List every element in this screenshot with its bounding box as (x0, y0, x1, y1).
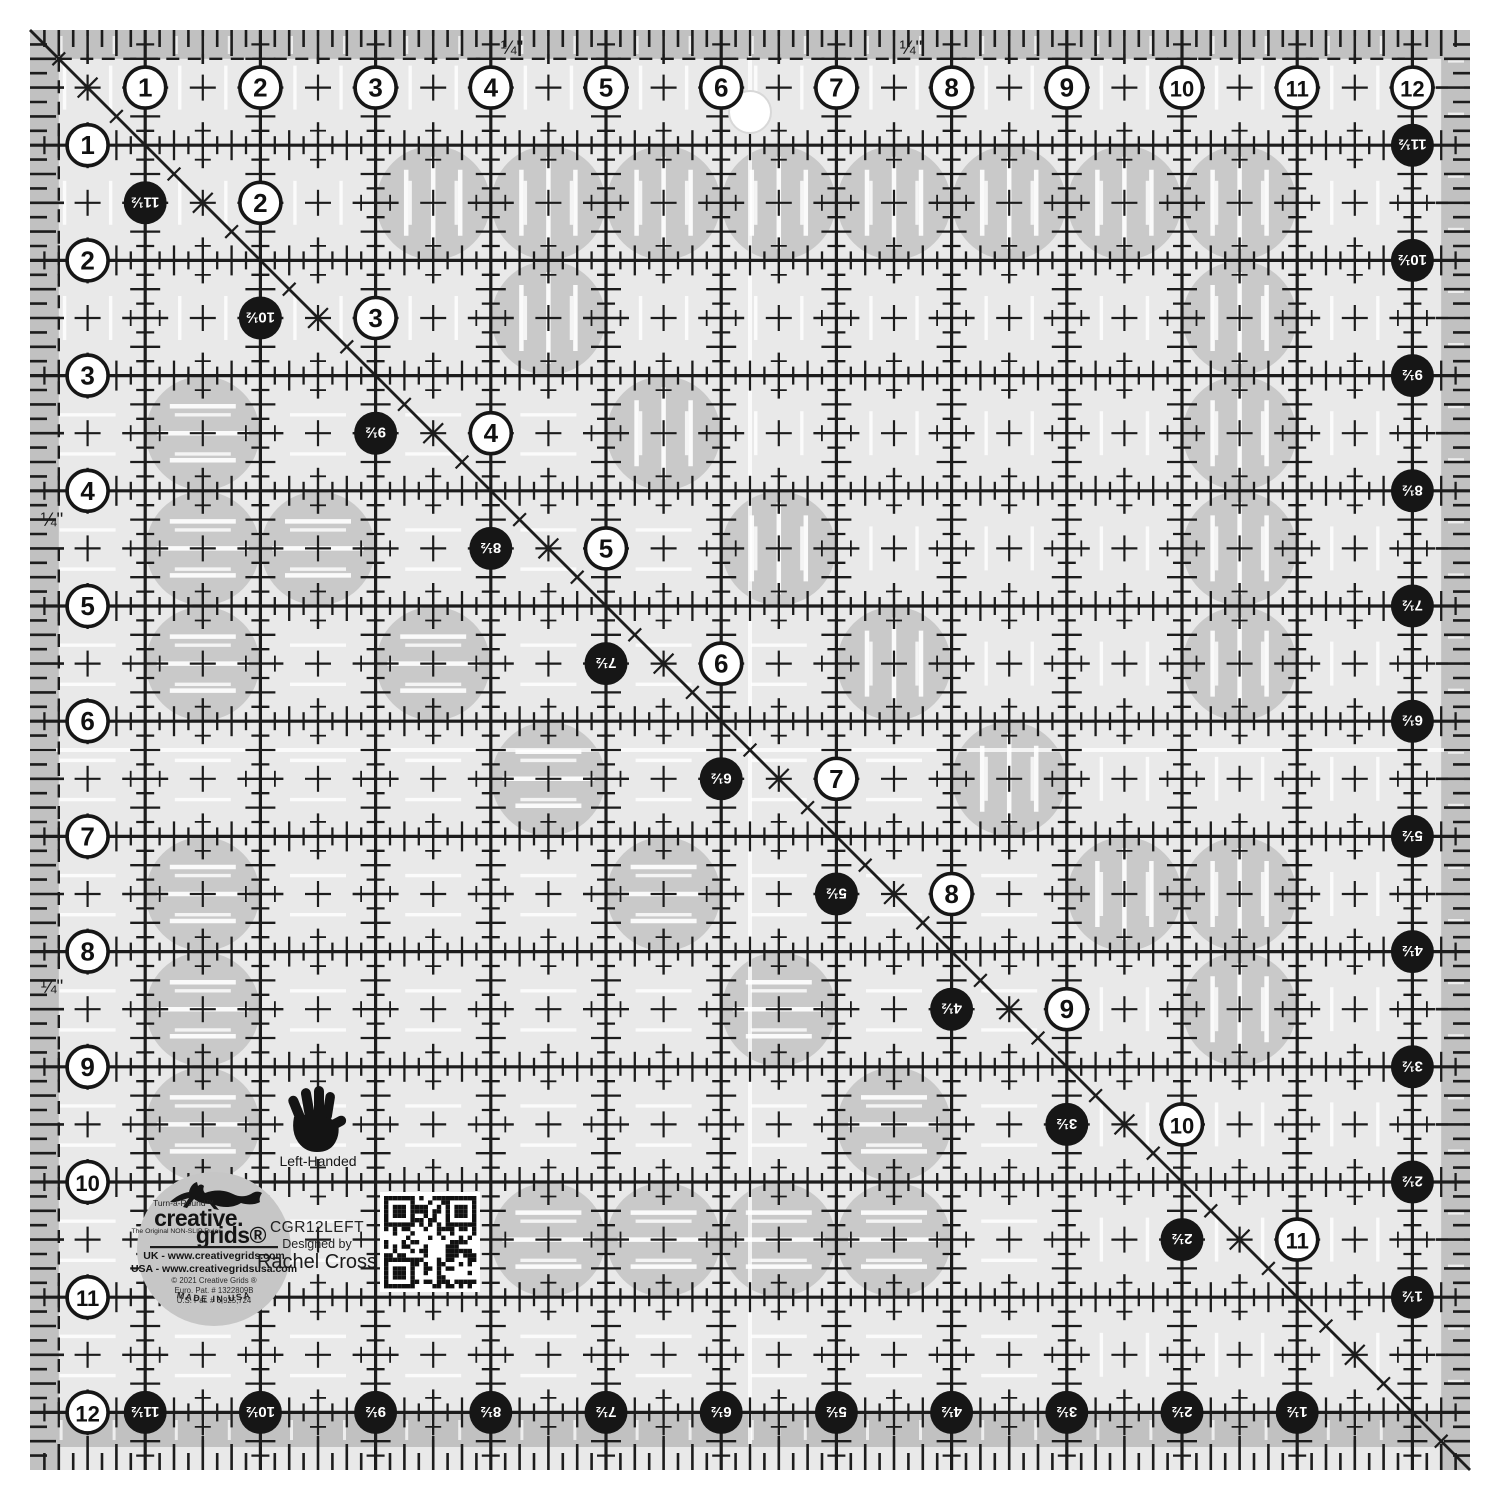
svg-text:12: 12 (1400, 77, 1424, 102)
scale-number-diag-4: 4 (470, 413, 511, 454)
scale-number-diag-rev-2½: 2½ (1161, 1218, 1204, 1261)
scale-number-diag-3: 3 (355, 298, 396, 339)
svg-text:1½: 1½ (1402, 1288, 1423, 1305)
svg-text:5: 5 (599, 533, 613, 563)
scale-number-bottom-9½: 9½ (354, 1391, 397, 1434)
svg-text:7: 7 (80, 821, 94, 851)
svg-text:5½: 5½ (826, 885, 847, 902)
designed-by-label: Designed by (282, 1237, 352, 1251)
scale-number-top-8: 8 (931, 67, 972, 108)
svg-text:7: 7 (829, 73, 843, 103)
qr-code (380, 1192, 480, 1292)
scale-number-left-12: 12 (67, 1392, 108, 1433)
scale-number-top-2: 2 (240, 67, 281, 108)
scale-number-left-1: 1 (67, 125, 108, 166)
scale-number-diag-rev-11½: 11½ (124, 181, 167, 224)
svg-text:6: 6 (714, 73, 728, 103)
scale-number-top-3: 3 (355, 67, 396, 108)
scale-number-left-4: 4 (67, 470, 108, 511)
scale-number-left-3: 3 (67, 355, 108, 396)
scale-number-left-2: 2 (67, 240, 108, 281)
svg-text:10: 10 (75, 1171, 99, 1196)
scale-number-diag-6: 6 (701, 643, 742, 684)
scale-number-top-5: 5 (586, 67, 627, 108)
svg-text:2½: 2½ (1402, 1173, 1423, 1190)
scale-number-diag-rev-4½: 4½ (930, 988, 973, 1031)
svg-text:6½: 6½ (711, 1403, 732, 1420)
svg-text:8: 8 (80, 937, 94, 967)
scale-number-diag-rev-3½: 3½ (1045, 1103, 1088, 1146)
scale-number-diag-rev-9½: 9½ (354, 412, 397, 455)
svg-text:5: 5 (599, 73, 613, 103)
scale-number-right-3½: 3½ (1391, 1045, 1434, 1088)
scale-number-diag-11: 11 (1277, 1219, 1318, 1260)
scale-number-diag-7: 7 (816, 758, 857, 799)
svg-text:10: 10 (1170, 1113, 1194, 1138)
scale-number-left-10: 10 (67, 1162, 108, 1203)
svg-text:11: 11 (76, 1286, 99, 1311)
scale-number-top-1: 1 (125, 67, 166, 108)
scale-number-right-1½: 1½ (1391, 1276, 1434, 1319)
model-number: CGR12LEFT (270, 1219, 364, 1236)
svg-text:6½: 6½ (1402, 712, 1423, 729)
scale-number-diag-5: 5 (586, 528, 627, 569)
svg-text:3: 3 (368, 73, 382, 103)
svg-text:3½: 3½ (1402, 1057, 1423, 1074)
quarter-label-left-1: ¼" (41, 510, 64, 531)
scale-number-bottom-1½: 1½ (1276, 1391, 1319, 1434)
svg-text:7½: 7½ (1402, 597, 1423, 614)
svg-text:2: 2 (80, 245, 94, 275)
svg-text:4: 4 (484, 418, 499, 448)
svg-text:4: 4 (484, 73, 499, 103)
svg-text:6: 6 (80, 706, 94, 736)
svg-text:9½: 9½ (365, 1403, 386, 1420)
scale-number-bottom-8½: 8½ (469, 1391, 512, 1434)
svg-text:2½: 2½ (1172, 1403, 1193, 1420)
svg-text:8½: 8½ (480, 1403, 501, 1420)
scale-number-right-6½: 6½ (1391, 700, 1434, 743)
scale-number-right-8½: 8½ (1391, 469, 1434, 512)
scale-number-diag-10: 10 (1162, 1104, 1203, 1145)
scale-number-diag-rev-10½: 10½ (239, 297, 282, 340)
svg-text:9: 9 (1060, 994, 1074, 1024)
svg-text:4½: 4½ (941, 1000, 962, 1017)
svg-text:9: 9 (80, 1052, 94, 1082)
svg-text:8: 8 (944, 73, 958, 103)
scale-number-diag-rev-8½: 8½ (469, 527, 512, 570)
scale-number-top-11: 11 (1277, 67, 1318, 108)
scale-number-top-7: 7 (816, 67, 857, 108)
logo-subtitle: The Original NON-SLIP Ruler (131, 1228, 221, 1235)
svg-text:10½: 10½ (246, 1403, 275, 1420)
svg-text:8½: 8½ (480, 539, 501, 556)
svg-text:1: 1 (138, 73, 152, 103)
scale-number-right-5½: 5½ (1391, 815, 1434, 858)
scale-number-right-9½: 9½ (1391, 354, 1434, 397)
scale-number-right-11½: 11½ (1391, 124, 1434, 167)
scale-number-diag-rev-7½: 7½ (585, 642, 628, 685)
scale-number-top-6: 6 (701, 67, 742, 108)
scale-number-left-7: 7 (67, 816, 108, 857)
svg-text:3: 3 (80, 361, 94, 391)
svg-text:2: 2 (253, 188, 267, 218)
svg-text:5½: 5½ (1402, 827, 1423, 844)
scale-number-bottom-2½: 2½ (1161, 1391, 1204, 1434)
quarter-label-top-1: ¼" (501, 38, 524, 59)
scale-number-bottom-11½: 11½ (124, 1391, 167, 1434)
svg-text:6½: 6½ (711, 769, 732, 786)
svg-text:1: 1 (80, 130, 94, 160)
svg-text:9: 9 (1060, 73, 1074, 103)
svg-text:7: 7 (829, 764, 843, 794)
left-handed-label: Left-Handed (279, 1153, 356, 1169)
logo-copyright: © 2021 Creative Grids ® (171, 1276, 256, 1285)
svg-text:8: 8 (944, 879, 958, 909)
svg-text:4½: 4½ (941, 1403, 962, 1420)
scale-number-right-2½: 2½ (1391, 1161, 1434, 1204)
svg-text:12: 12 (75, 1401, 99, 1426)
svg-text:3½: 3½ (1056, 1403, 1077, 1420)
svg-text:2½: 2½ (1172, 1230, 1193, 1247)
scale-number-bottom-6½: 6½ (700, 1391, 743, 1434)
scale-number-top-4: 4 (470, 67, 511, 108)
svg-text:11½: 11½ (131, 193, 159, 210)
scale-number-right-7½: 7½ (1391, 585, 1434, 628)
quarter-label-left-2: ¼" (41, 977, 64, 998)
scale-number-right-4½: 4½ (1391, 930, 1434, 973)
svg-text:11½: 11½ (1398, 136, 1426, 153)
scale-number-right-10½: 10½ (1391, 239, 1434, 282)
svg-text:10: 10 (1170, 77, 1194, 102)
svg-text:8½: 8½ (1402, 481, 1423, 498)
svg-text:5: 5 (80, 591, 94, 621)
scale-number-diag-rev-6½: 6½ (700, 757, 743, 800)
svg-text:4: 4 (80, 476, 95, 506)
svg-text:11½: 11½ (131, 1403, 159, 1420)
quarter-label-top-2: ¼" (900, 38, 923, 59)
designer-name: Rachel Cross (257, 1251, 377, 1273)
svg-text:5½: 5½ (826, 1403, 847, 1420)
svg-text:11: 11 (1286, 77, 1309, 102)
svg-text:9½: 9½ (365, 424, 386, 441)
svg-text:7½: 7½ (596, 1403, 617, 1420)
svg-text:11: 11 (1286, 1229, 1309, 1254)
scale-number-left-8: 8 (67, 931, 108, 972)
scale-number-diag-rev-5½: 5½ (815, 873, 858, 916)
logo-name-2: grids® (196, 1222, 267, 1248)
scale-number-diag-9: 9 (1046, 989, 1087, 1030)
svg-text:6: 6 (714, 649, 728, 679)
scale-number-top-12: 12 (1392, 67, 1433, 108)
scale-number-diag-2: 2 (240, 182, 281, 223)
svg-text:3: 3 (368, 303, 382, 333)
scale-number-left-6: 6 (67, 701, 108, 742)
scale-number-top-10: 10 (1162, 67, 1203, 108)
scale-number-left-9: 9 (67, 1046, 108, 1087)
scale-number-bottom-5½: 5½ (815, 1391, 858, 1434)
ruler-graphic: 12345678910111212345678910111211½10½9½8½… (0, 0, 1500, 1500)
scale-number-left-5: 5 (67, 586, 108, 627)
quilting-ruler-product-image: 12345678910111212345678910111211½10½9½8½… (0, 0, 1500, 1500)
scale-number-top-9: 9 (1046, 67, 1087, 108)
scale-number-bottom-4½: 4½ (930, 1391, 973, 1434)
svg-text:10½: 10½ (246, 309, 275, 326)
svg-text:4½: 4½ (1402, 942, 1423, 959)
scale-number-bottom-7½: 7½ (585, 1391, 628, 1434)
scale-number-bottom-3½: 3½ (1045, 1391, 1088, 1434)
scale-number-diag-8: 8 (931, 874, 972, 915)
svg-text:10½: 10½ (1398, 251, 1427, 268)
scale-number-left-11: 11 (67, 1277, 108, 1318)
svg-text:2: 2 (253, 73, 267, 103)
logo-divider (150, 1246, 278, 1248)
svg-text:3½: 3½ (1056, 1115, 1077, 1132)
scale-number-bottom-10½: 10½ (239, 1391, 282, 1434)
svg-text:7½: 7½ (596, 654, 617, 671)
svg-text:1½: 1½ (1287, 1403, 1308, 1420)
svg-text:9½: 9½ (1402, 366, 1423, 383)
